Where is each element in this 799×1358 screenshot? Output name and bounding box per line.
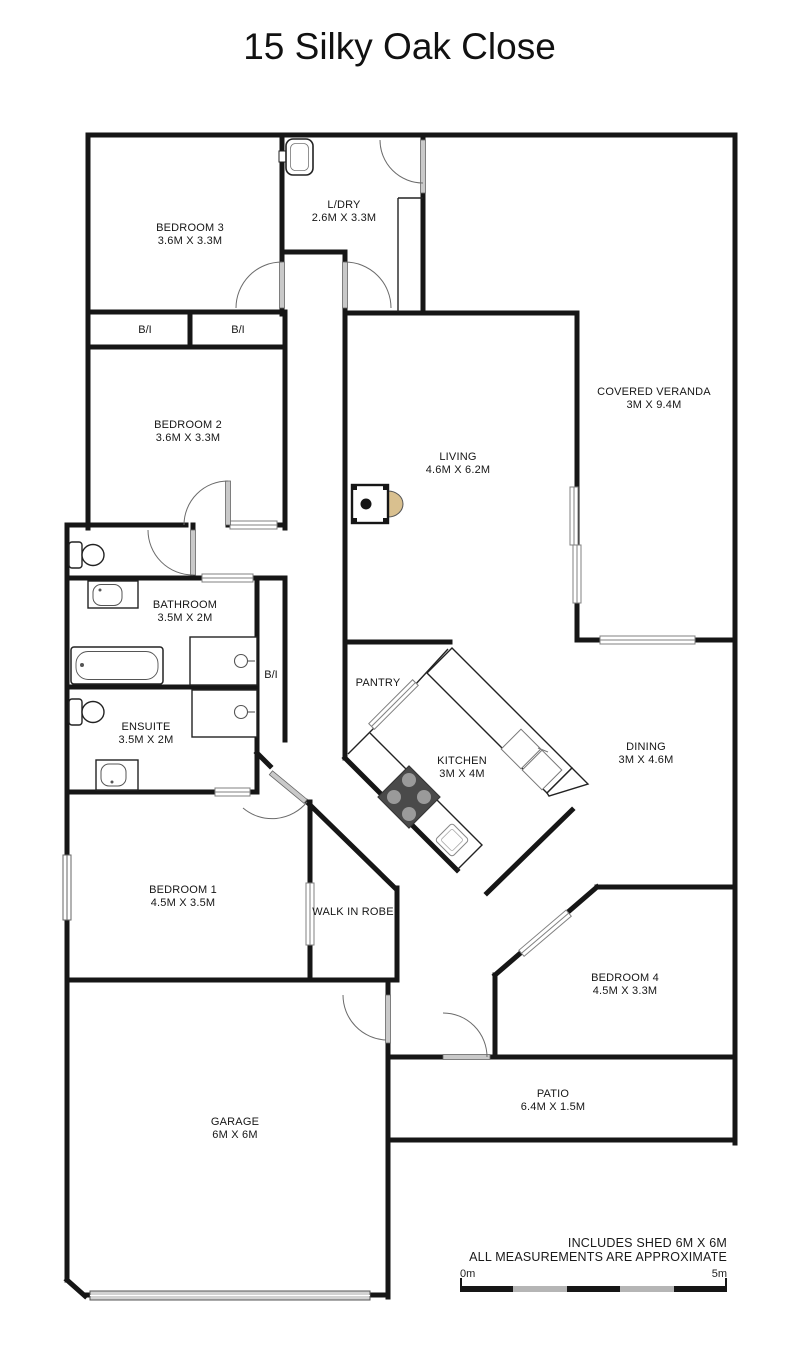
room-label-living: LIVING 4.6M X 6.2M (426, 451, 491, 477)
room-label-veranda: COVERED VERANDA 3M X 9.4M (597, 386, 711, 412)
ensuite-vanity-icon (96, 760, 138, 790)
built-in-robe-label-right: B/I (231, 324, 244, 336)
scale-start-label: 0m (460, 1268, 475, 1280)
ensuite-shower-icon (192, 690, 257, 737)
room-label-dining: DINING 3M X 4.6M (619, 741, 674, 767)
living-door (343, 262, 392, 308)
floor-plan-page: 15 Silky Oak Close (0, 0, 799, 1358)
front-door (243, 771, 307, 819)
patio-back-door (443, 1013, 490, 1060)
wood-heater-icon (351, 484, 403, 524)
note-measurements: ALL MEASUREMENTS ARE APPROXIMATE (469, 1250, 727, 1264)
room-label-patio: PATIO 6.4M X 1.5M (521, 1088, 586, 1114)
bathroom-slider (202, 574, 253, 582)
room-label-bedroom3: BEDROOM 3 3.6M X 3.3M (156, 222, 224, 248)
bathroom-vanity-icon (88, 581, 138, 608)
built-in-robe-label-bath: B/I (264, 669, 277, 681)
scale-bar-segments (460, 1286, 727, 1292)
bedroom4-slider (519, 910, 571, 956)
room-label-bedroom2: BEDROOM 2 3.6M X 3.3M (154, 419, 222, 445)
cooktop-icon (378, 766, 440, 828)
walls (67, 135, 735, 1297)
bedroom1-window (63, 855, 71, 920)
bedroom2-door (184, 481, 231, 525)
room-label-bedroom1: BEDROOM 1 4.5M X 3.5M (149, 884, 217, 910)
bedroom3-door (236, 262, 285, 308)
wc-toilet-icon (69, 542, 104, 568)
room-label-garage: GARAGE 6M X 6M (211, 1116, 259, 1142)
bathroom-shower-icon (190, 637, 257, 685)
room-label-bathroom: BATHROOM 3.5M X 2M (153, 599, 217, 625)
ensuite-slider (215, 788, 250, 796)
fixtures (69, 139, 562, 857)
hall-slider (230, 521, 277, 529)
room-label-laundry: L/DRY 2.6M X 3.3M (312, 199, 377, 225)
note-shed: INCLUDES SHED 6M X 6M (469, 1236, 727, 1250)
bathtub-icon (71, 647, 163, 684)
ensuite-toilet-icon (69, 699, 104, 725)
scale-bar: 0m 5m (460, 1268, 727, 1296)
plan-notes: INCLUDES SHED 6M X 6M ALL MEASUREMENTS A… (469, 1236, 727, 1264)
room-label-bedroom4: BEDROOM 4 4.5M X 3.3M (591, 972, 659, 998)
room-label-ensuite: ENSUITE 3.5M X 2M (119, 721, 174, 747)
room-label-kitchen: KITCHEN 3M X 4M (437, 755, 487, 781)
garage-door (90, 1291, 370, 1300)
garage-internal-door (343, 995, 391, 1043)
veranda-window (600, 636, 695, 644)
room-label-pantry: PANTRY (356, 677, 401, 690)
wc-door (148, 530, 196, 575)
built-in-robe-label-left: B/I (138, 324, 151, 336)
room-label-walk-in-robe: WALK IN ROBE (312, 906, 393, 919)
veranda-entry-door (380, 140, 426, 193)
